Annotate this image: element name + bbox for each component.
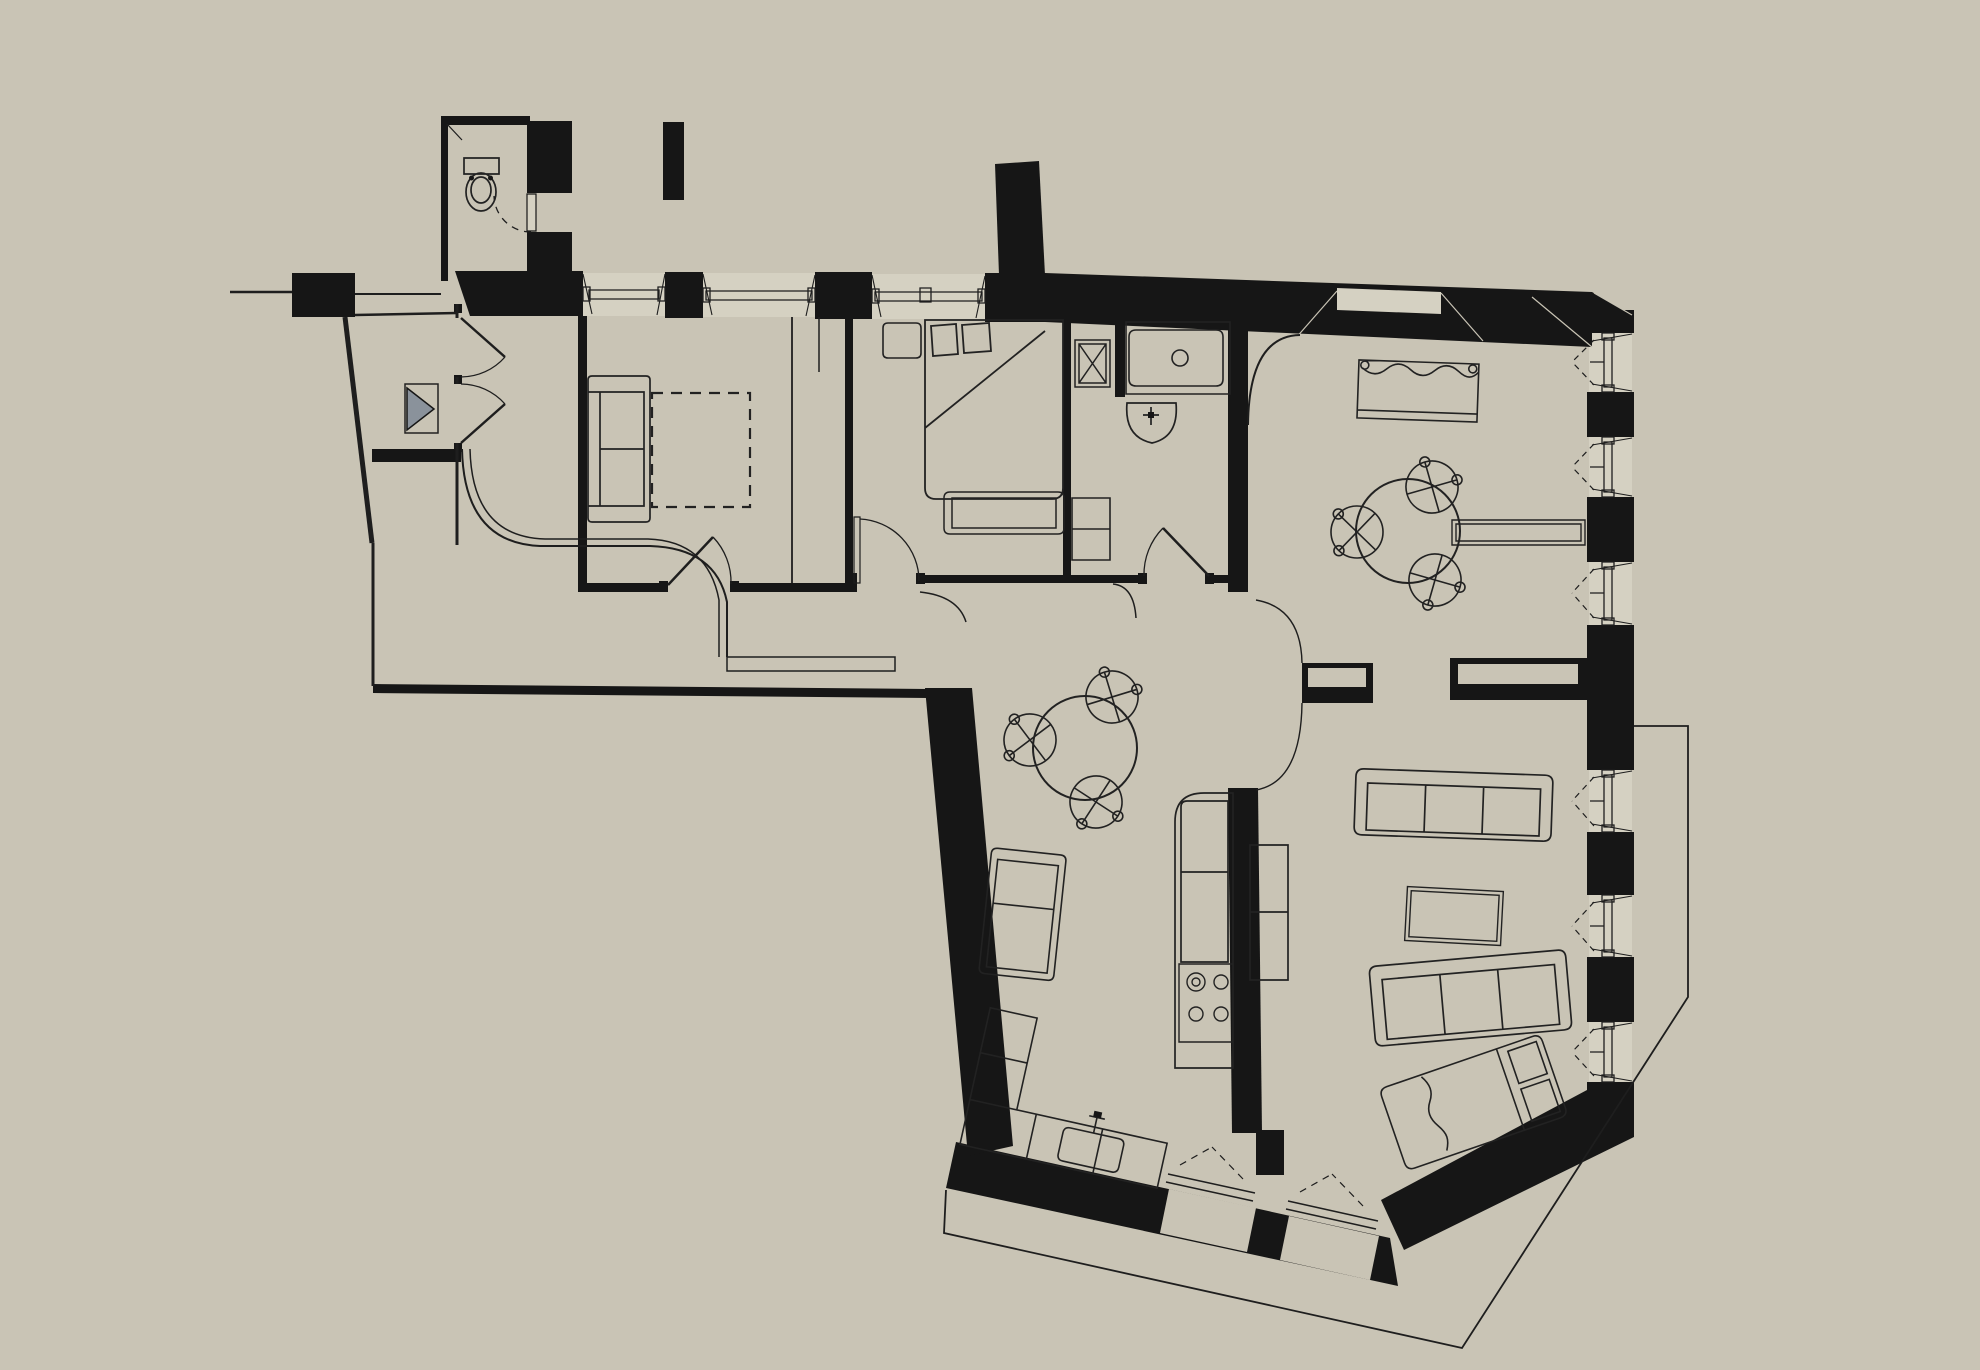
wall-bath-stub	[1115, 322, 1125, 397]
wall-bath-left	[1063, 320, 1071, 583]
jamb-bath-1	[1138, 573, 1147, 584]
notch-top-right-window	[1337, 288, 1441, 314]
wall-top-pier-2	[815, 272, 872, 319]
wall-right-2	[1587, 497, 1634, 562]
wall-stub-right-slot	[1458, 664, 1578, 684]
jamb-room-b-2	[916, 573, 925, 584]
wall-right-1	[1587, 392, 1634, 437]
wall-top-mid	[985, 273, 1045, 322]
washbasin-dot	[1148, 412, 1154, 418]
wall-room-a-bottom-a	[578, 583, 668, 592]
wall-right-0	[1587, 310, 1634, 333]
wall-chimney	[995, 161, 1045, 275]
jamb-room-a-1	[659, 581, 668, 592]
wall-top-pier-1	[665, 272, 703, 318]
door-wc-leaf	[527, 194, 536, 231]
wall-bath-bottom-a	[1071, 575, 1140, 583]
window-reveal-top-3	[872, 274, 985, 319]
wall-right-5	[1587, 957, 1634, 1022]
wall-entry-pier	[292, 273, 355, 317]
wall-right-3	[1587, 625, 1634, 770]
wall-stub-left-slot	[1308, 668, 1366, 687]
wall-float-block	[663, 122, 684, 200]
wall-vestibule-bottom	[372, 449, 461, 462]
wall-room-b-bottom-b	[918, 575, 1063, 583]
wall-divider-end-block	[1256, 1130, 1284, 1175]
floor-plan-canvas	[0, 0, 1980, 1370]
wall-room-a-left	[578, 316, 587, 583]
window-reveal-top-1	[583, 273, 665, 316]
floor-plan-svg	[0, 0, 1980, 1370]
jamb-room-b-1	[848, 573, 857, 584]
window-reveal-top-2	[703, 273, 815, 317]
wall-wc-right-upper	[527, 121, 572, 193]
wall-right-4	[1587, 832, 1634, 895]
wall-room-a-bottom-b	[731, 583, 845, 592]
wall-divider-upper	[1228, 330, 1248, 592]
wall-top-left	[455, 271, 583, 316]
wall-room-ab	[845, 315, 853, 583]
